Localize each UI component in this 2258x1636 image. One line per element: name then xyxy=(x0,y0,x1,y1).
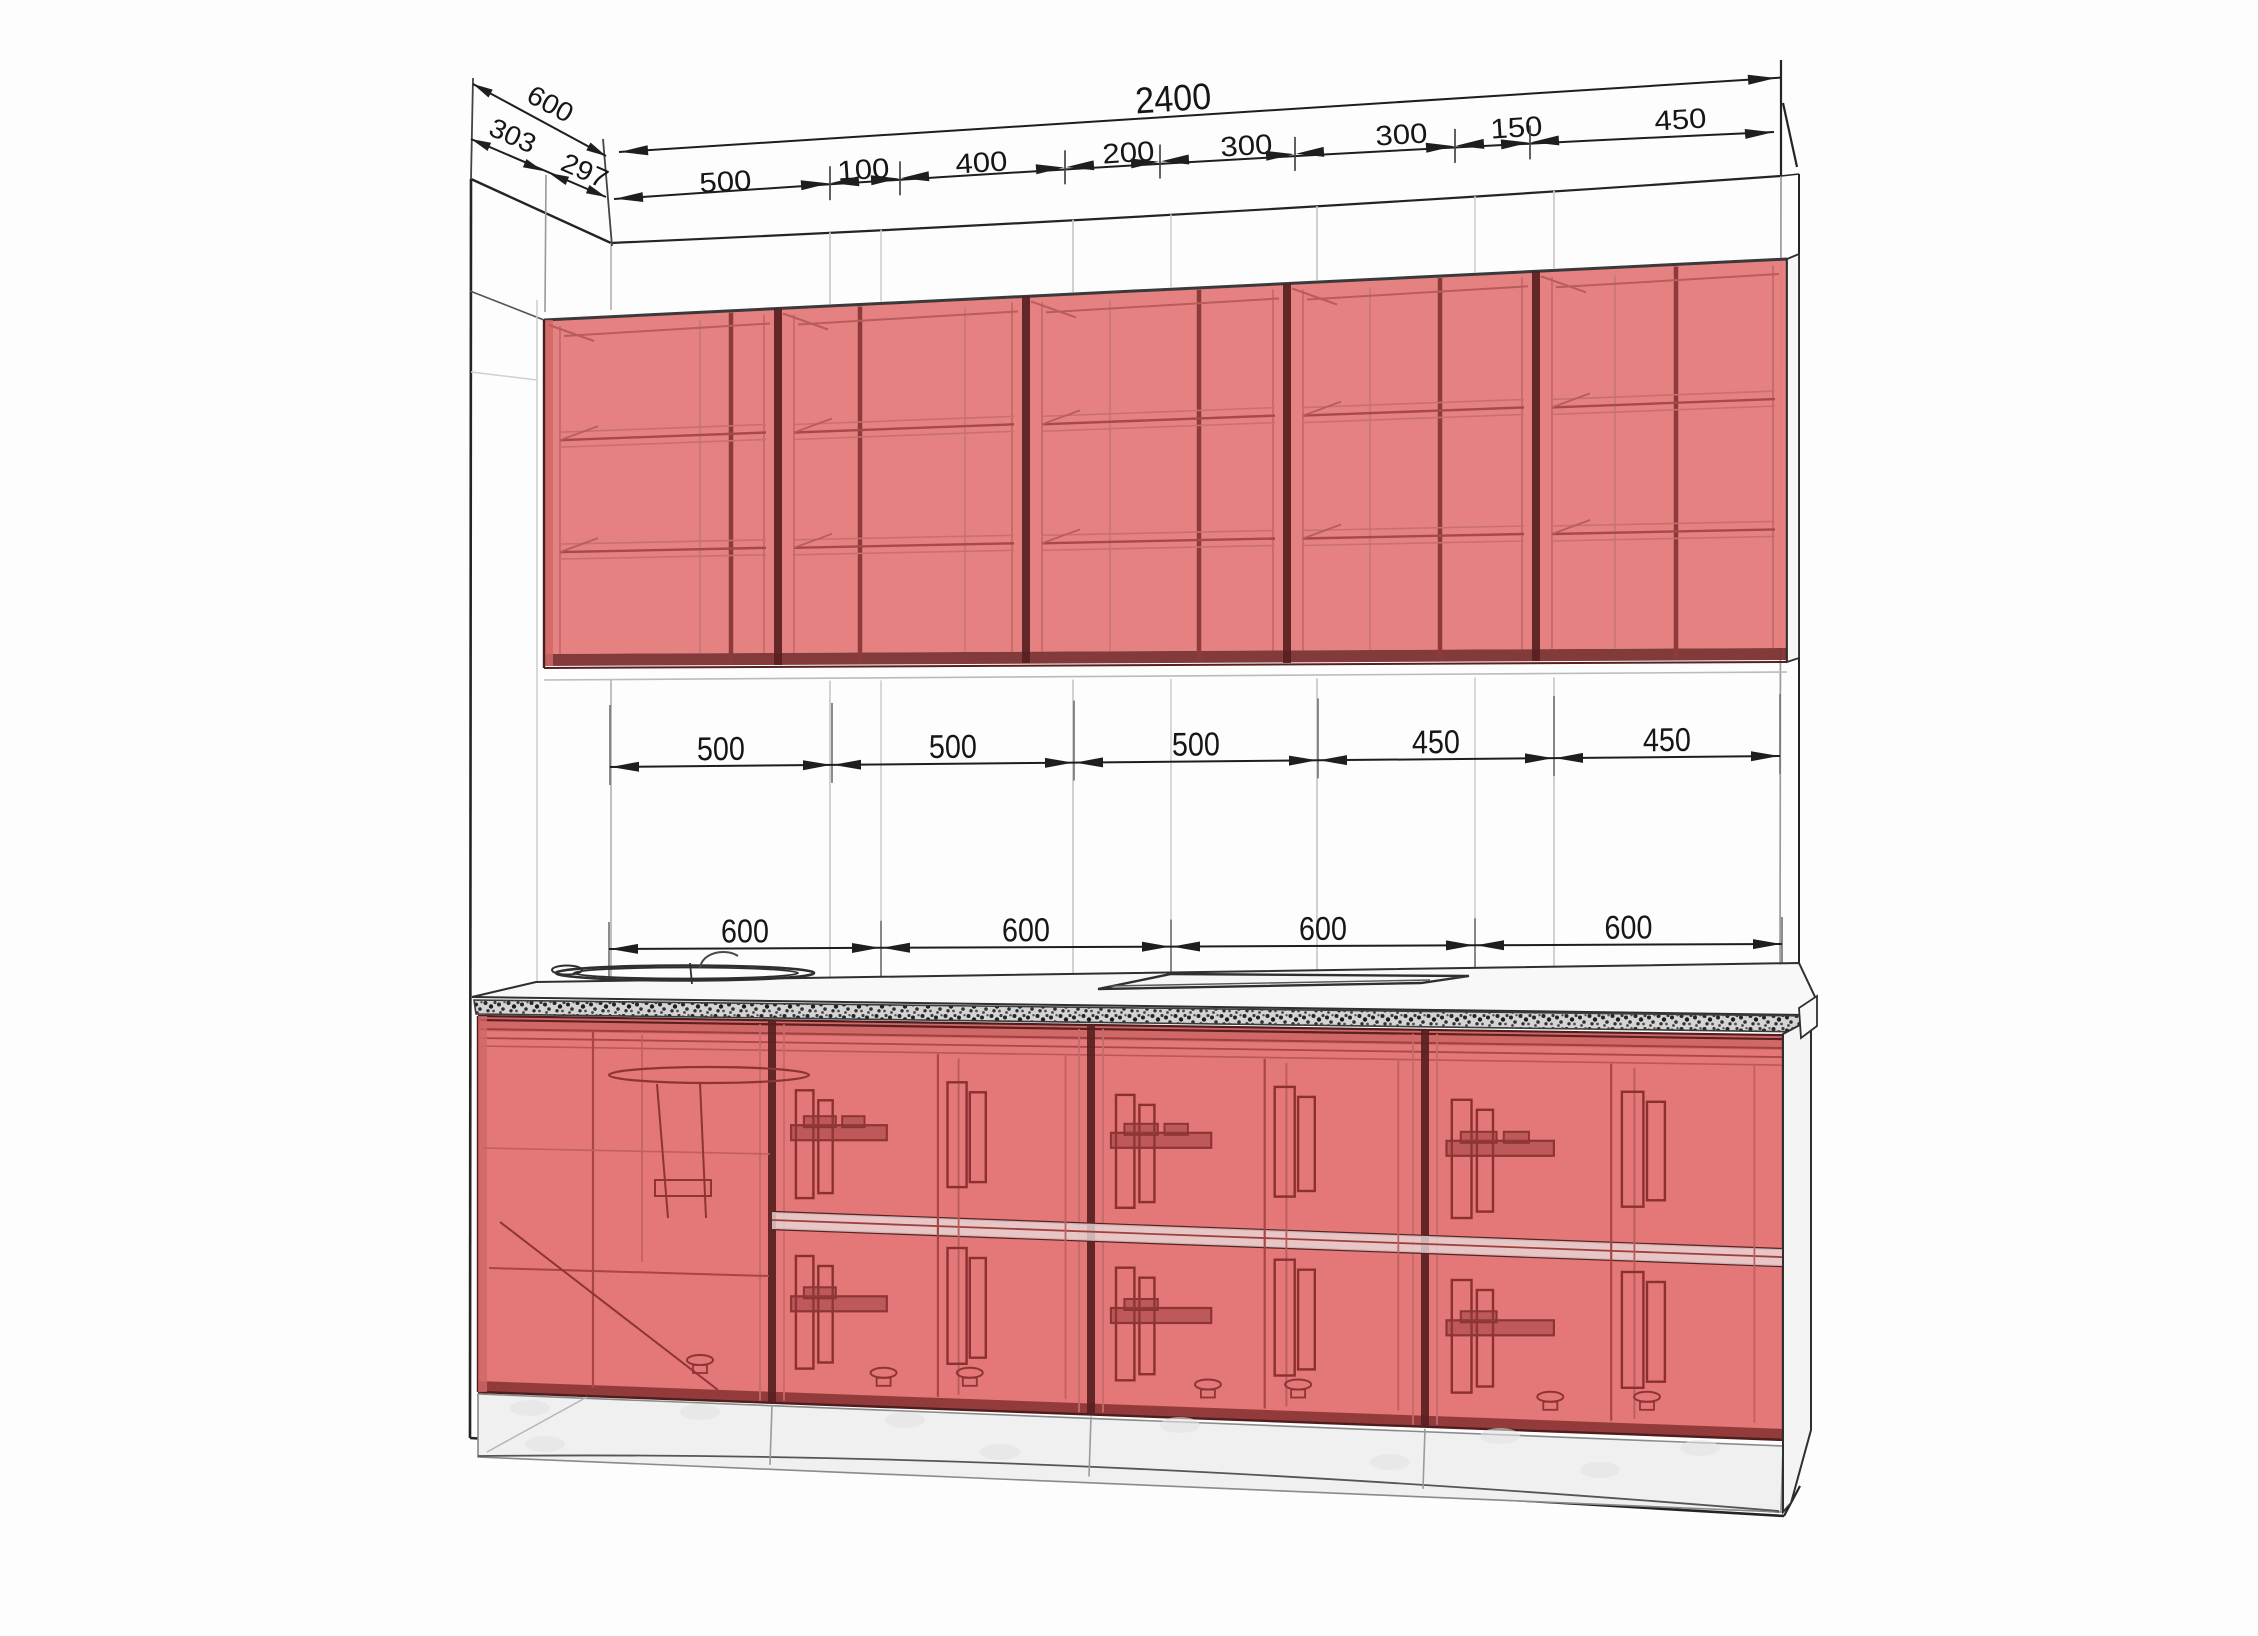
svg-text:600: 600 xyxy=(1604,908,1652,945)
svg-text:500: 500 xyxy=(698,164,752,198)
svg-text:300: 300 xyxy=(1219,128,1273,162)
svg-text:500: 500 xyxy=(1172,725,1220,763)
svg-text:2400: 2400 xyxy=(1134,76,1213,122)
svg-text:450: 450 xyxy=(1643,721,1691,759)
svg-text:600: 600 xyxy=(1299,910,1347,947)
svg-text:500: 500 xyxy=(929,728,977,766)
svg-text:300: 300 xyxy=(1374,117,1428,151)
svg-text:500: 500 xyxy=(697,730,745,768)
svg-text:150: 150 xyxy=(1489,110,1543,144)
svg-text:600: 600 xyxy=(721,912,769,949)
svg-text:450: 450 xyxy=(1653,102,1707,136)
svg-text:600: 600 xyxy=(1002,911,1050,948)
svg-text:450: 450 xyxy=(1412,723,1460,761)
svg-text:400: 400 xyxy=(954,145,1008,179)
